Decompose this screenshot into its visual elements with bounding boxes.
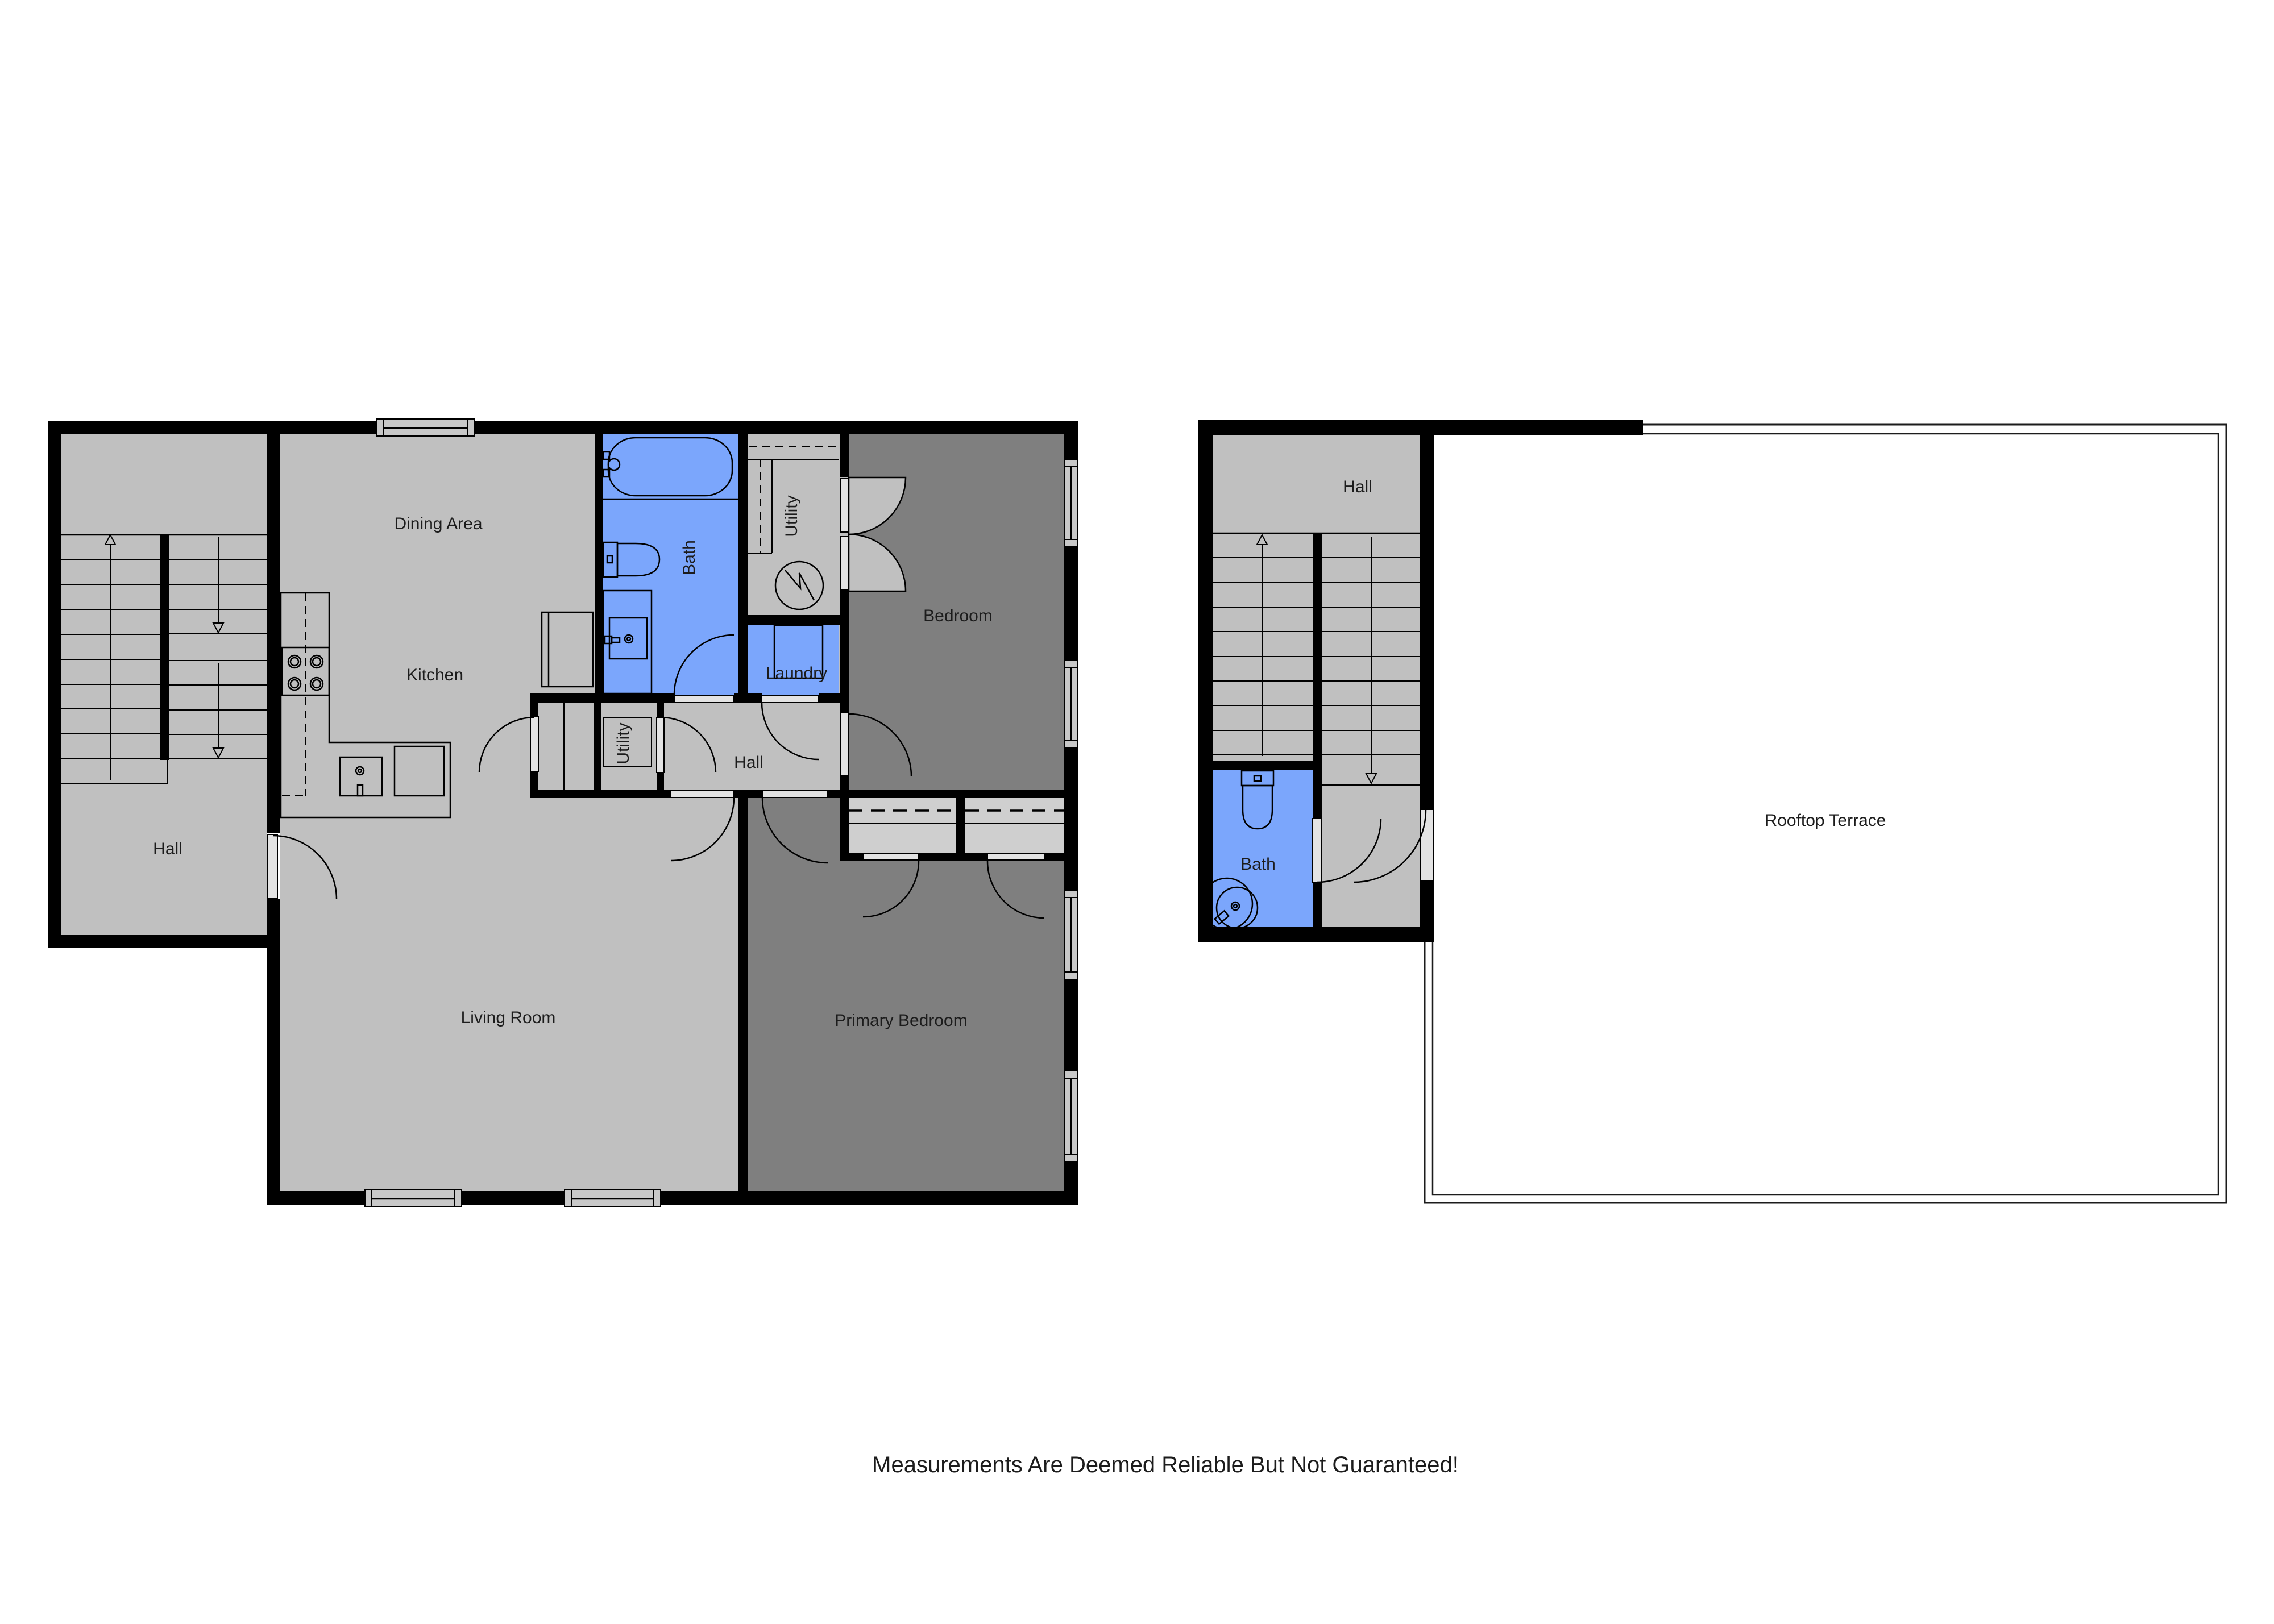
svg-text:Living Room: Living Room <box>461 1008 556 1027</box>
svg-text:Utility: Utility <box>614 722 633 764</box>
svg-text:Hall: Hall <box>1343 477 1372 496</box>
svg-text:Rooftop Terrace: Rooftop Terrace <box>1765 811 1886 830</box>
svg-text:Bedroom: Bedroom <box>923 607 993 625</box>
svg-text:Bath: Bath <box>1240 855 1276 874</box>
svg-text:Laundry: Laundry <box>766 664 827 683</box>
svg-text:Bath: Bath <box>680 540 699 575</box>
svg-text:Kitchen: Kitchen <box>406 666 463 684</box>
svg-text:Dining Area: Dining Area <box>394 514 482 533</box>
svg-text:Utility: Utility <box>782 495 801 537</box>
svg-text:Hall: Hall <box>153 840 182 858</box>
svg-text:Hall: Hall <box>734 753 763 772</box>
svg-text:Primary Bedroom: Primary Bedroom <box>835 1011 967 1030</box>
svg-text:Measurements Are Deemed Reliab: Measurements Are Deemed Reliable But Not… <box>872 1452 1459 1477</box>
